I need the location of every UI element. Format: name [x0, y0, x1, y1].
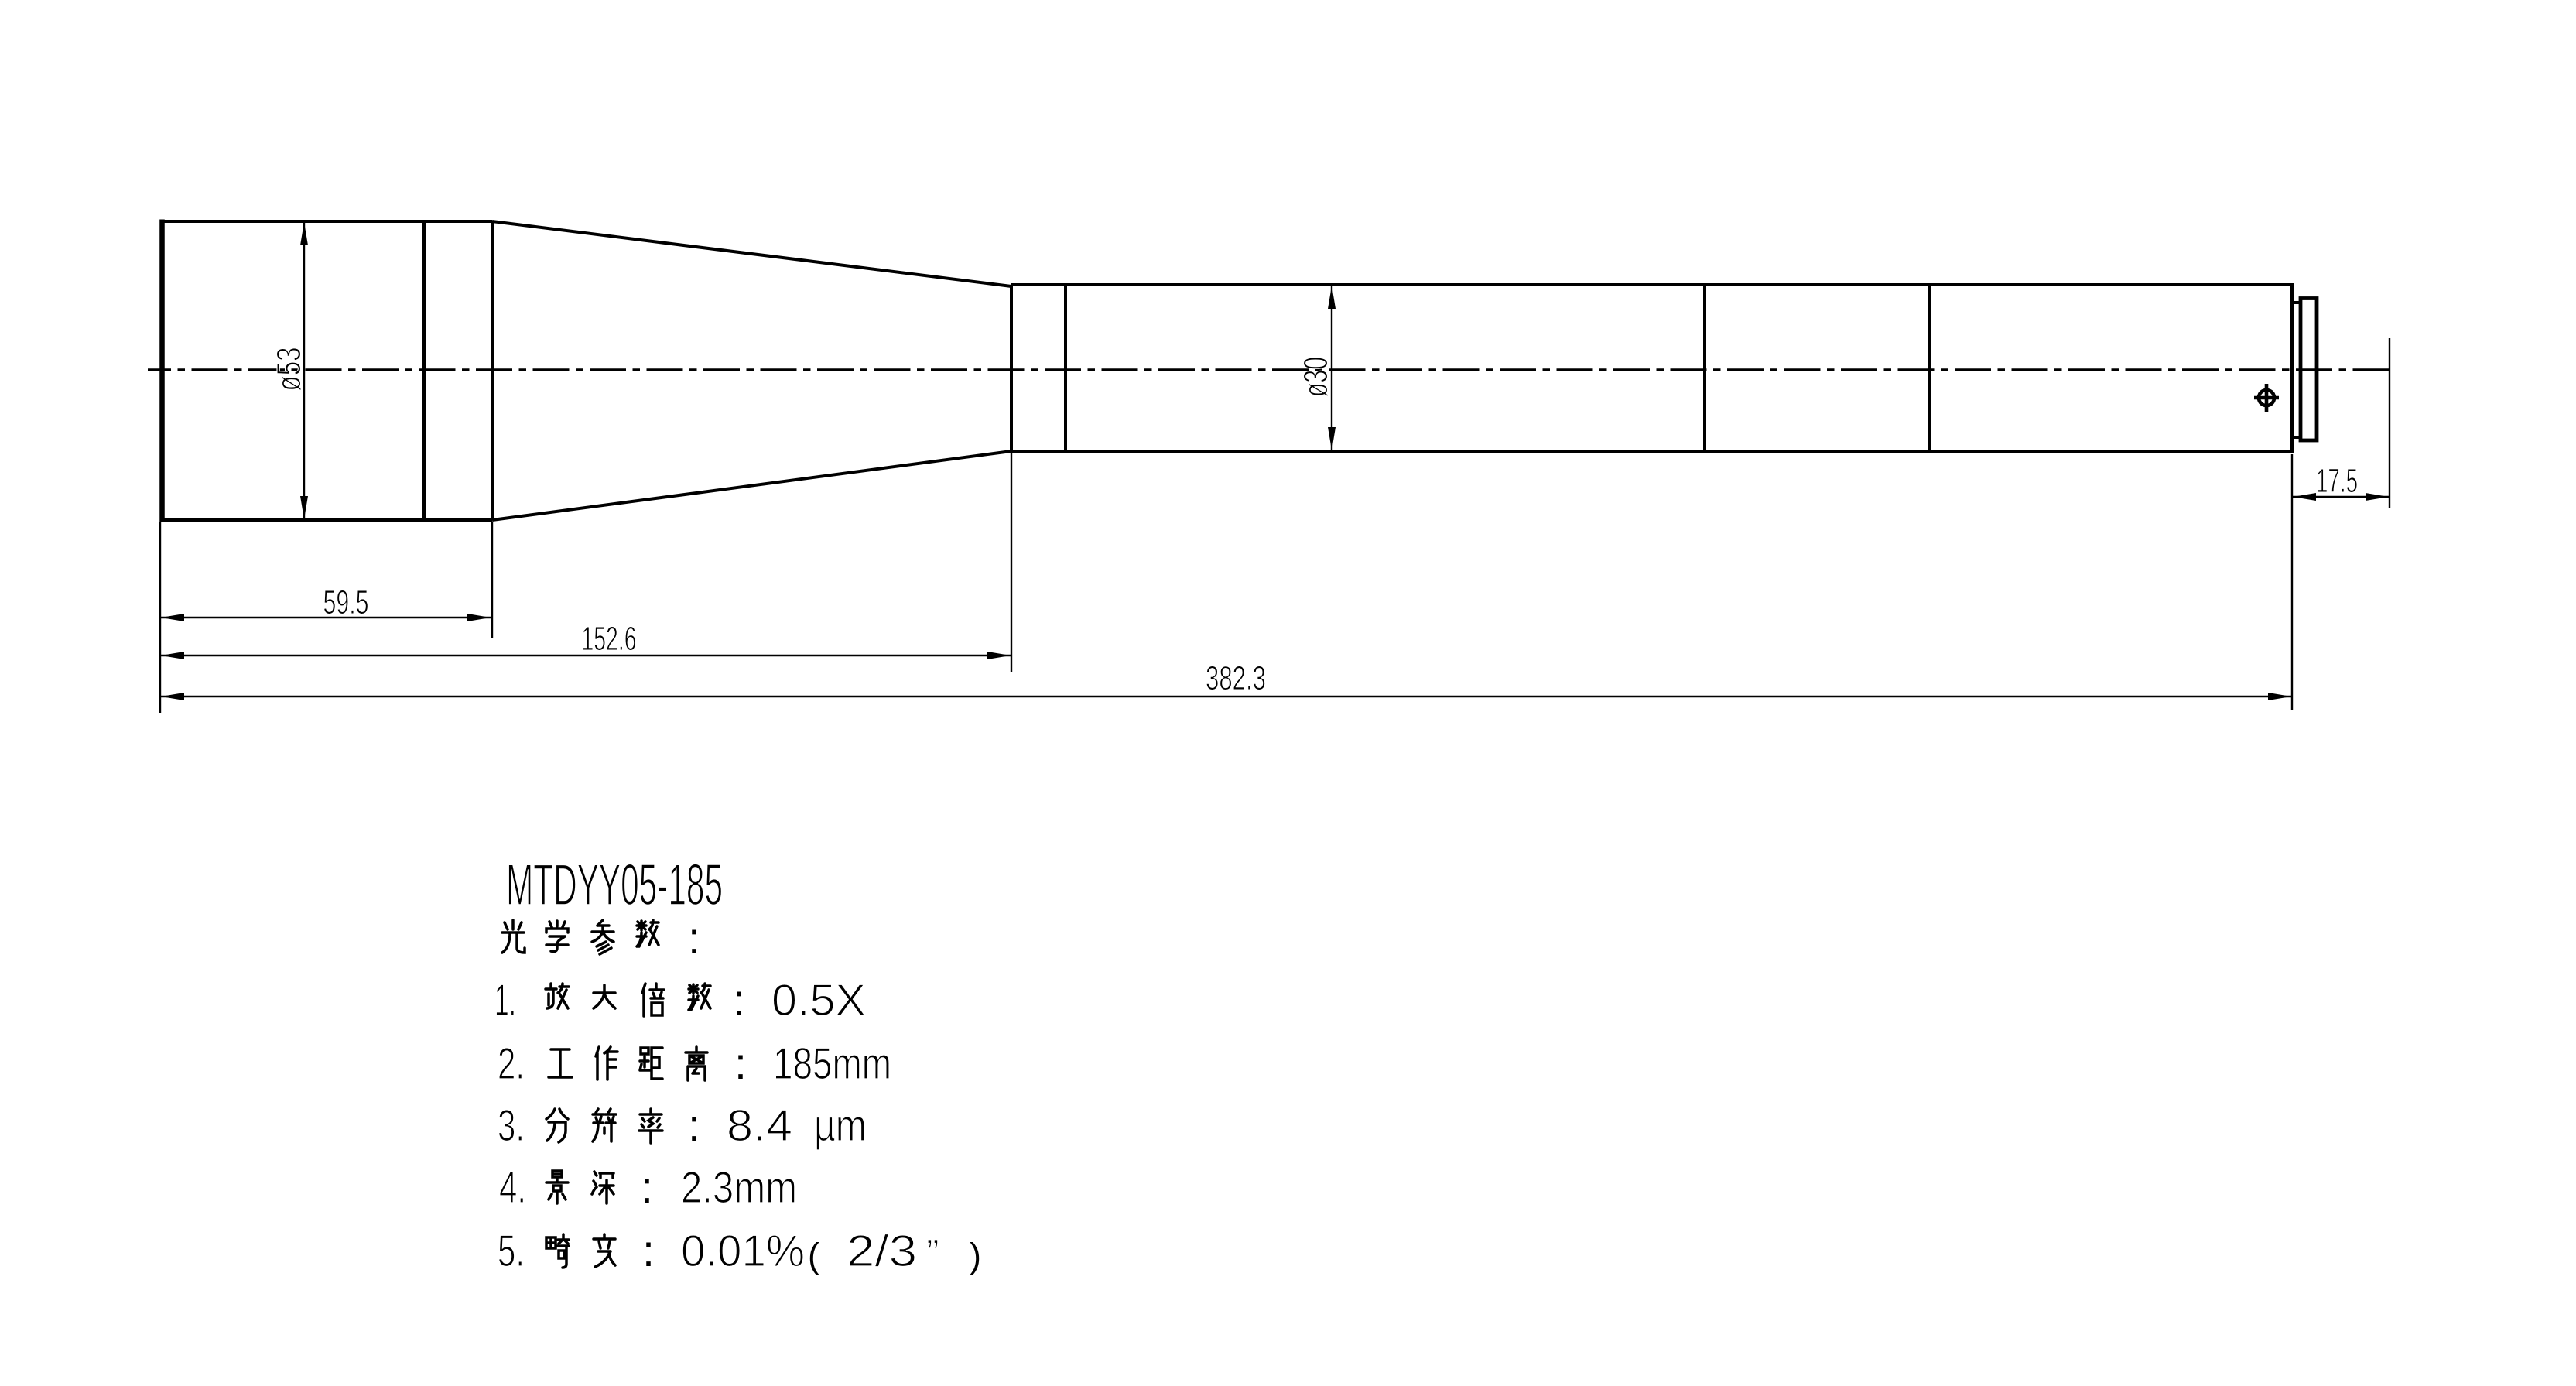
svg-text:1.: 1. [494, 976, 516, 1025]
svg-text::: : [733, 976, 745, 1025]
svg-text:152.6: 152.6 [582, 620, 637, 658]
svg-text:2.: 2. [498, 1039, 525, 1089]
svg-text::: : [642, 1227, 655, 1276]
svg-text:µm: µm [814, 1101, 867, 1151]
svg-text:59.5: 59.5 [323, 583, 369, 621]
svg-text:17.5: 17.5 [2316, 462, 2358, 500]
svg-text::: : [641, 1163, 653, 1213]
svg-text::: : [688, 1101, 700, 1151]
svg-text:185mm: 185mm [773, 1039, 891, 1089]
svg-text:2/3: 2/3 [847, 1227, 917, 1276]
svg-text:(: ( [808, 1236, 819, 1275]
svg-text:”: ” [926, 1231, 939, 1275]
svg-text:2.3mm: 2.3mm [681, 1163, 797, 1213]
svg-text:): ) [970, 1236, 981, 1275]
svg-text::: : [688, 914, 700, 963]
svg-text:ø30: ø30 [1297, 357, 1335, 397]
svg-text:3.: 3. [498, 1101, 525, 1151]
svg-text:MTDYY05-185: MTDYY05-185 [506, 852, 723, 917]
svg-text:4.: 4. [499, 1163, 526, 1213]
svg-text:ø53: ø53 [270, 347, 308, 392]
svg-text::: : [734, 1039, 747, 1089]
svg-text:8.4: 8.4 [727, 1101, 792, 1151]
svg-text:5.: 5. [498, 1227, 525, 1276]
svg-text:382.3: 382.3 [1206, 659, 1266, 697]
svg-text:0.5X: 0.5X [771, 976, 866, 1025]
svg-text:0.01%: 0.01% [681, 1227, 805, 1276]
